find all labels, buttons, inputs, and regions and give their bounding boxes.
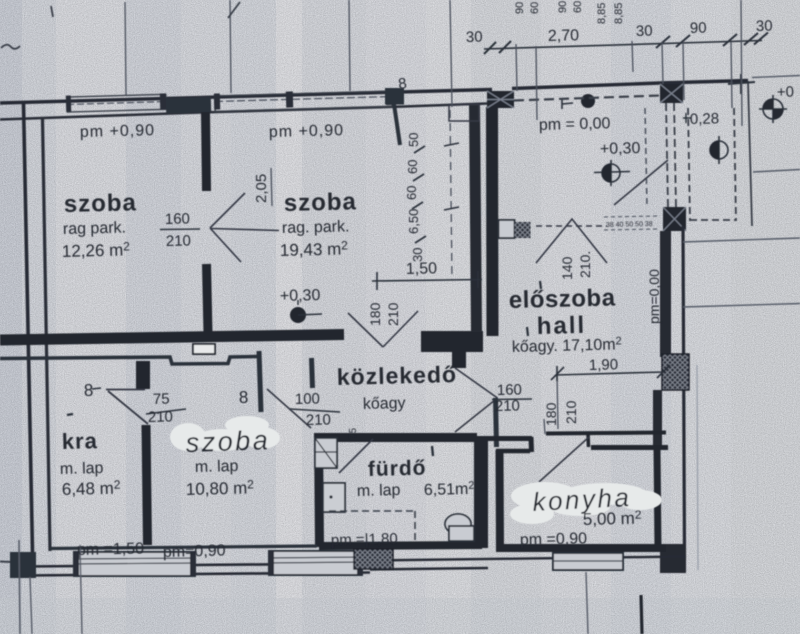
svg-text:pm = 0,00: pm = 0,00 bbox=[539, 115, 611, 134]
svg-text:30: 30 bbox=[466, 29, 483, 46]
svg-text:60: 60 bbox=[572, 1, 584, 13]
svg-text:210: 210 bbox=[563, 400, 579, 424]
svg-text:60: 60 bbox=[529, 2, 541, 14]
svg-text:6,50: 6,50 bbox=[406, 209, 421, 234]
svg-text:szoba: szoba bbox=[63, 189, 137, 218]
svg-text:210: 210 bbox=[166, 232, 191, 250]
svg-text:210: 210 bbox=[385, 302, 401, 326]
svg-text:160: 160 bbox=[165, 210, 190, 228]
svg-text:140: 140 bbox=[559, 256, 575, 280]
svg-text:5,00 m2: 5,00 m2 bbox=[583, 508, 642, 529]
svg-text:19,43 m2: 19,43 m2 bbox=[280, 238, 349, 260]
svg-text:+0,30: +0,30 bbox=[280, 287, 321, 305]
svg-text:12,26 m2: 12,26 m2 bbox=[62, 239, 131, 261]
svg-text:30: 30 bbox=[410, 248, 425, 262]
svg-text:180: 180 bbox=[367, 302, 383, 326]
svg-text:100: 100 bbox=[295, 390, 320, 408]
svg-text:90: 90 bbox=[690, 20, 707, 37]
svg-text:160: 160 bbox=[497, 381, 522, 399]
svg-text:210: 210 bbox=[148, 408, 173, 426]
svg-text:210: 210 bbox=[306, 411, 331, 429]
svg-text:hall: hall bbox=[536, 312, 586, 340]
svg-text:2,05: 2,05 bbox=[253, 174, 270, 203]
svg-text:pm =|1,80: pm =|1,80 bbox=[331, 530, 398, 549]
svg-text:90: 90 bbox=[557, 1, 569, 13]
svg-text:75: 75 bbox=[348, 427, 359, 439]
svg-text:38 40 50 50 38: 38 40 50 50 38 bbox=[606, 221, 653, 229]
svg-text:kra: kra bbox=[62, 428, 99, 454]
svg-text:pm=0,00: pm=0,00 bbox=[646, 269, 662, 324]
svg-text:pm =1,50: pm =1,50 bbox=[77, 540, 145, 559]
svg-text:8,85: 8,85 bbox=[596, 3, 608, 24]
svg-text:50: 50 bbox=[406, 133, 421, 147]
svg-text:+0,30: +0,30 bbox=[600, 140, 641, 158]
svg-text:pm=0,90: pm=0,90 bbox=[163, 542, 226, 561]
svg-text:1,90: 1,90 bbox=[589, 356, 619, 374]
svg-text:m. lap: m. lap bbox=[195, 458, 239, 476]
svg-text:8: 8 bbox=[84, 381, 94, 400]
svg-text:rag park.: rag park. bbox=[63, 219, 127, 238]
svg-text:60: 60 bbox=[405, 160, 420, 174]
svg-text:közlekedő: közlekedő bbox=[336, 361, 457, 390]
svg-text:kőagy: kőagy bbox=[363, 395, 406, 413]
svg-text:pm +0,90: pm +0,90 bbox=[80, 122, 156, 141]
svg-text:6,48 m2: 6,48 m2 bbox=[62, 478, 121, 499]
svg-text:pm =0,90: pm =0,90 bbox=[520, 530, 588, 549]
svg-text:0,28: 0,28 bbox=[690, 110, 720, 128]
svg-text:75: 75 bbox=[153, 391, 170, 408]
svg-text:szoba: szoba bbox=[283, 188, 357, 217]
svg-text:30: 30 bbox=[756, 18, 773, 35]
svg-text:6,51m2: 6,51m2 bbox=[424, 480, 475, 499]
svg-text:60: 60 bbox=[404, 186, 419, 200]
svg-text:szoba: szoba bbox=[185, 425, 271, 458]
svg-text:30: 30 bbox=[636, 23, 653, 40]
svg-text:kőagy. 17,10m2: kőagy. 17,10m2 bbox=[512, 335, 622, 356]
svg-text:m. lap: m. lap bbox=[60, 460, 104, 478]
svg-text:fürdő: fürdő bbox=[368, 457, 427, 481]
svg-text:2,70: 2,70 bbox=[548, 27, 580, 45]
svg-text:rag. park.: rag. park. bbox=[282, 218, 350, 237]
svg-text:előszoba: előszoba bbox=[508, 284, 615, 314]
svg-text:m. lap: m. lap bbox=[357, 482, 401, 500]
svg-text:210.: 210. bbox=[577, 251, 593, 278]
svg-text:90: 90 bbox=[514, 2, 526, 14]
svg-text:pm +0,90: pm +0,90 bbox=[269, 122, 345, 141]
svg-text:8: 8 bbox=[239, 388, 249, 407]
svg-text:8,85: 8,85 bbox=[613, 3, 625, 24]
svg-text:180: 180 bbox=[543, 402, 559, 426]
svg-text:210: 210 bbox=[495, 397, 520, 415]
svg-text:+0: +0 bbox=[777, 84, 795, 101]
svg-text:10,80 m2: 10,80 m2 bbox=[186, 477, 255, 499]
